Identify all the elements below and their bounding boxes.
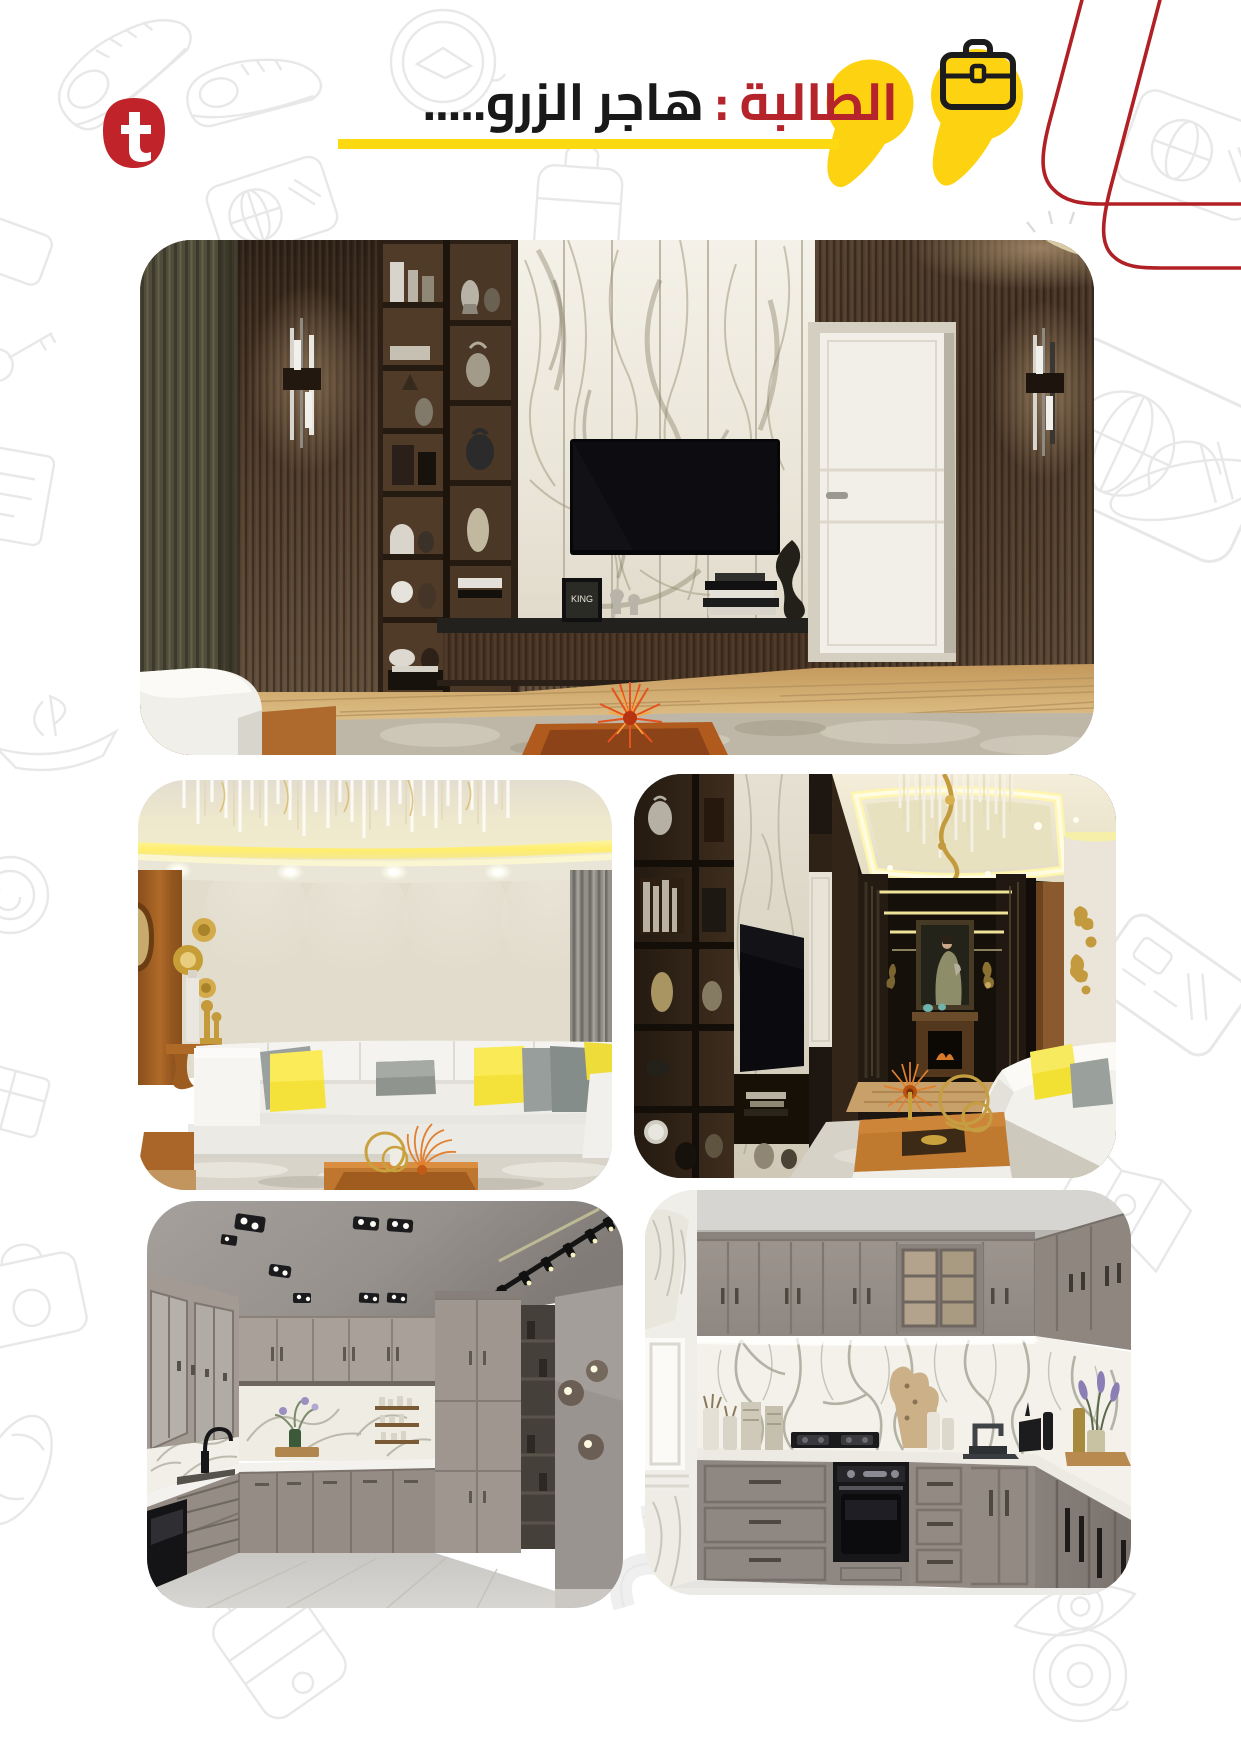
- svg-text:KING: KING: [571, 594, 593, 604]
